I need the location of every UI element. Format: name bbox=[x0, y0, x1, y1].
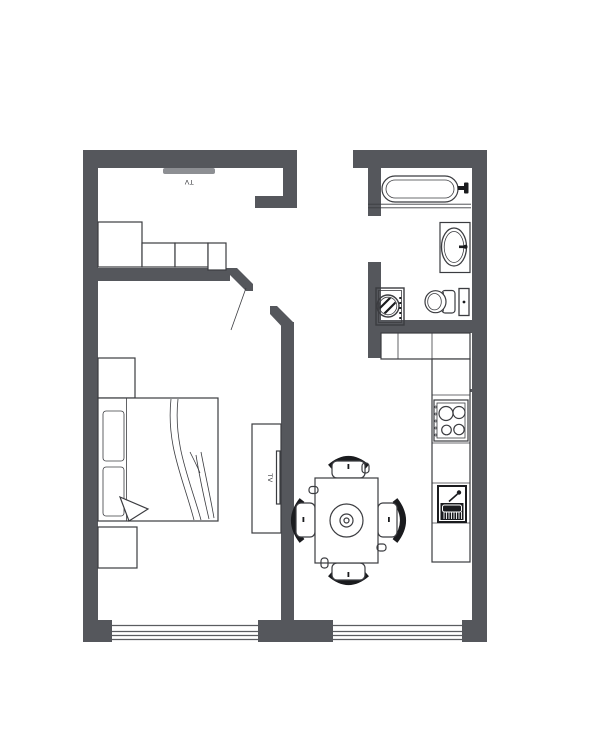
bathtub bbox=[368, 176, 471, 208]
washer-controls bbox=[399, 297, 401, 319]
wall-tv-label: TV bbox=[184, 178, 194, 186]
wardrobe bbox=[98, 222, 226, 270]
kitchen-cabinets-row bbox=[381, 333, 470, 359]
entry-nook-wall bbox=[255, 168, 297, 208]
floor-plan-drawing: TV TV bbox=[0, 0, 611, 750]
dining-set bbox=[294, 459, 403, 582]
toilet bbox=[425, 291, 455, 314]
bed-frame bbox=[98, 398, 218, 521]
dining-chair-right bbox=[378, 500, 403, 541]
bedroom-hall-wall bbox=[83, 268, 253, 291]
tv-stand: TV bbox=[252, 424, 281, 533]
dining-chair-left bbox=[294, 500, 315, 541]
tub-faucet-icon bbox=[458, 183, 469, 194]
wall-tv: TV bbox=[163, 168, 215, 186]
bathroom-sink bbox=[440, 223, 470, 273]
dining-table bbox=[315, 478, 378, 563]
bathroom bbox=[368, 176, 471, 325]
tv-stand-label: TV bbox=[266, 472, 274, 482]
window-left bbox=[112, 626, 258, 640]
dining-chair-bottom bbox=[330, 563, 367, 582]
kitchen-counter bbox=[432, 359, 470, 562]
door-swing bbox=[231, 288, 246, 330]
kitchen-sink bbox=[438, 486, 466, 522]
nightstand-bottom bbox=[98, 527, 137, 568]
bed bbox=[98, 398, 218, 521]
floor-plan: TV TV bbox=[0, 0, 611, 750]
wall-tv-screen bbox=[163, 168, 215, 174]
window-right bbox=[333, 626, 462, 640]
flush-panel bbox=[459, 289, 469, 316]
nightstand-top bbox=[98, 358, 135, 398]
walls bbox=[83, 150, 487, 642]
